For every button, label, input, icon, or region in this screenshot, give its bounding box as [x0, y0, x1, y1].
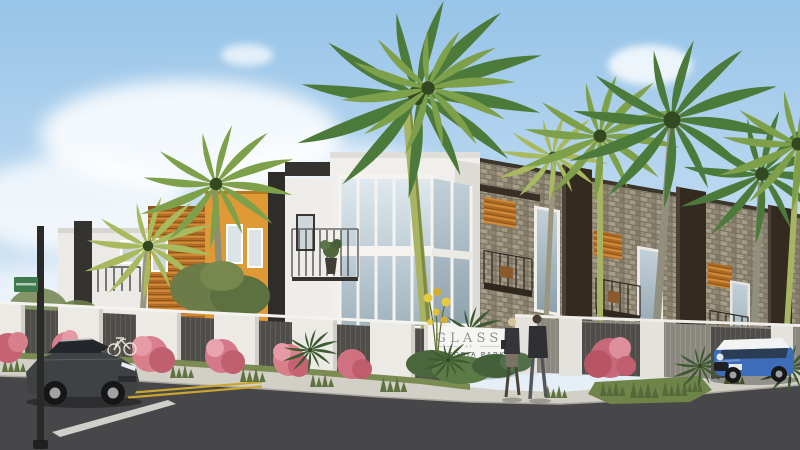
architectural-rendering-scene: GLASS AT VICTORIA PARK	[0, 0, 800, 450]
signpost-pole	[37, 226, 44, 448]
handbag	[501, 340, 506, 349]
scene-canvas: GLASS AT VICTORIA PARK	[0, 0, 800, 450]
sign-conjunction: AT	[465, 344, 473, 349]
planter-pot	[325, 258, 337, 274]
mini-headlight	[717, 354, 724, 361]
mini-car	[710, 338, 798, 385]
